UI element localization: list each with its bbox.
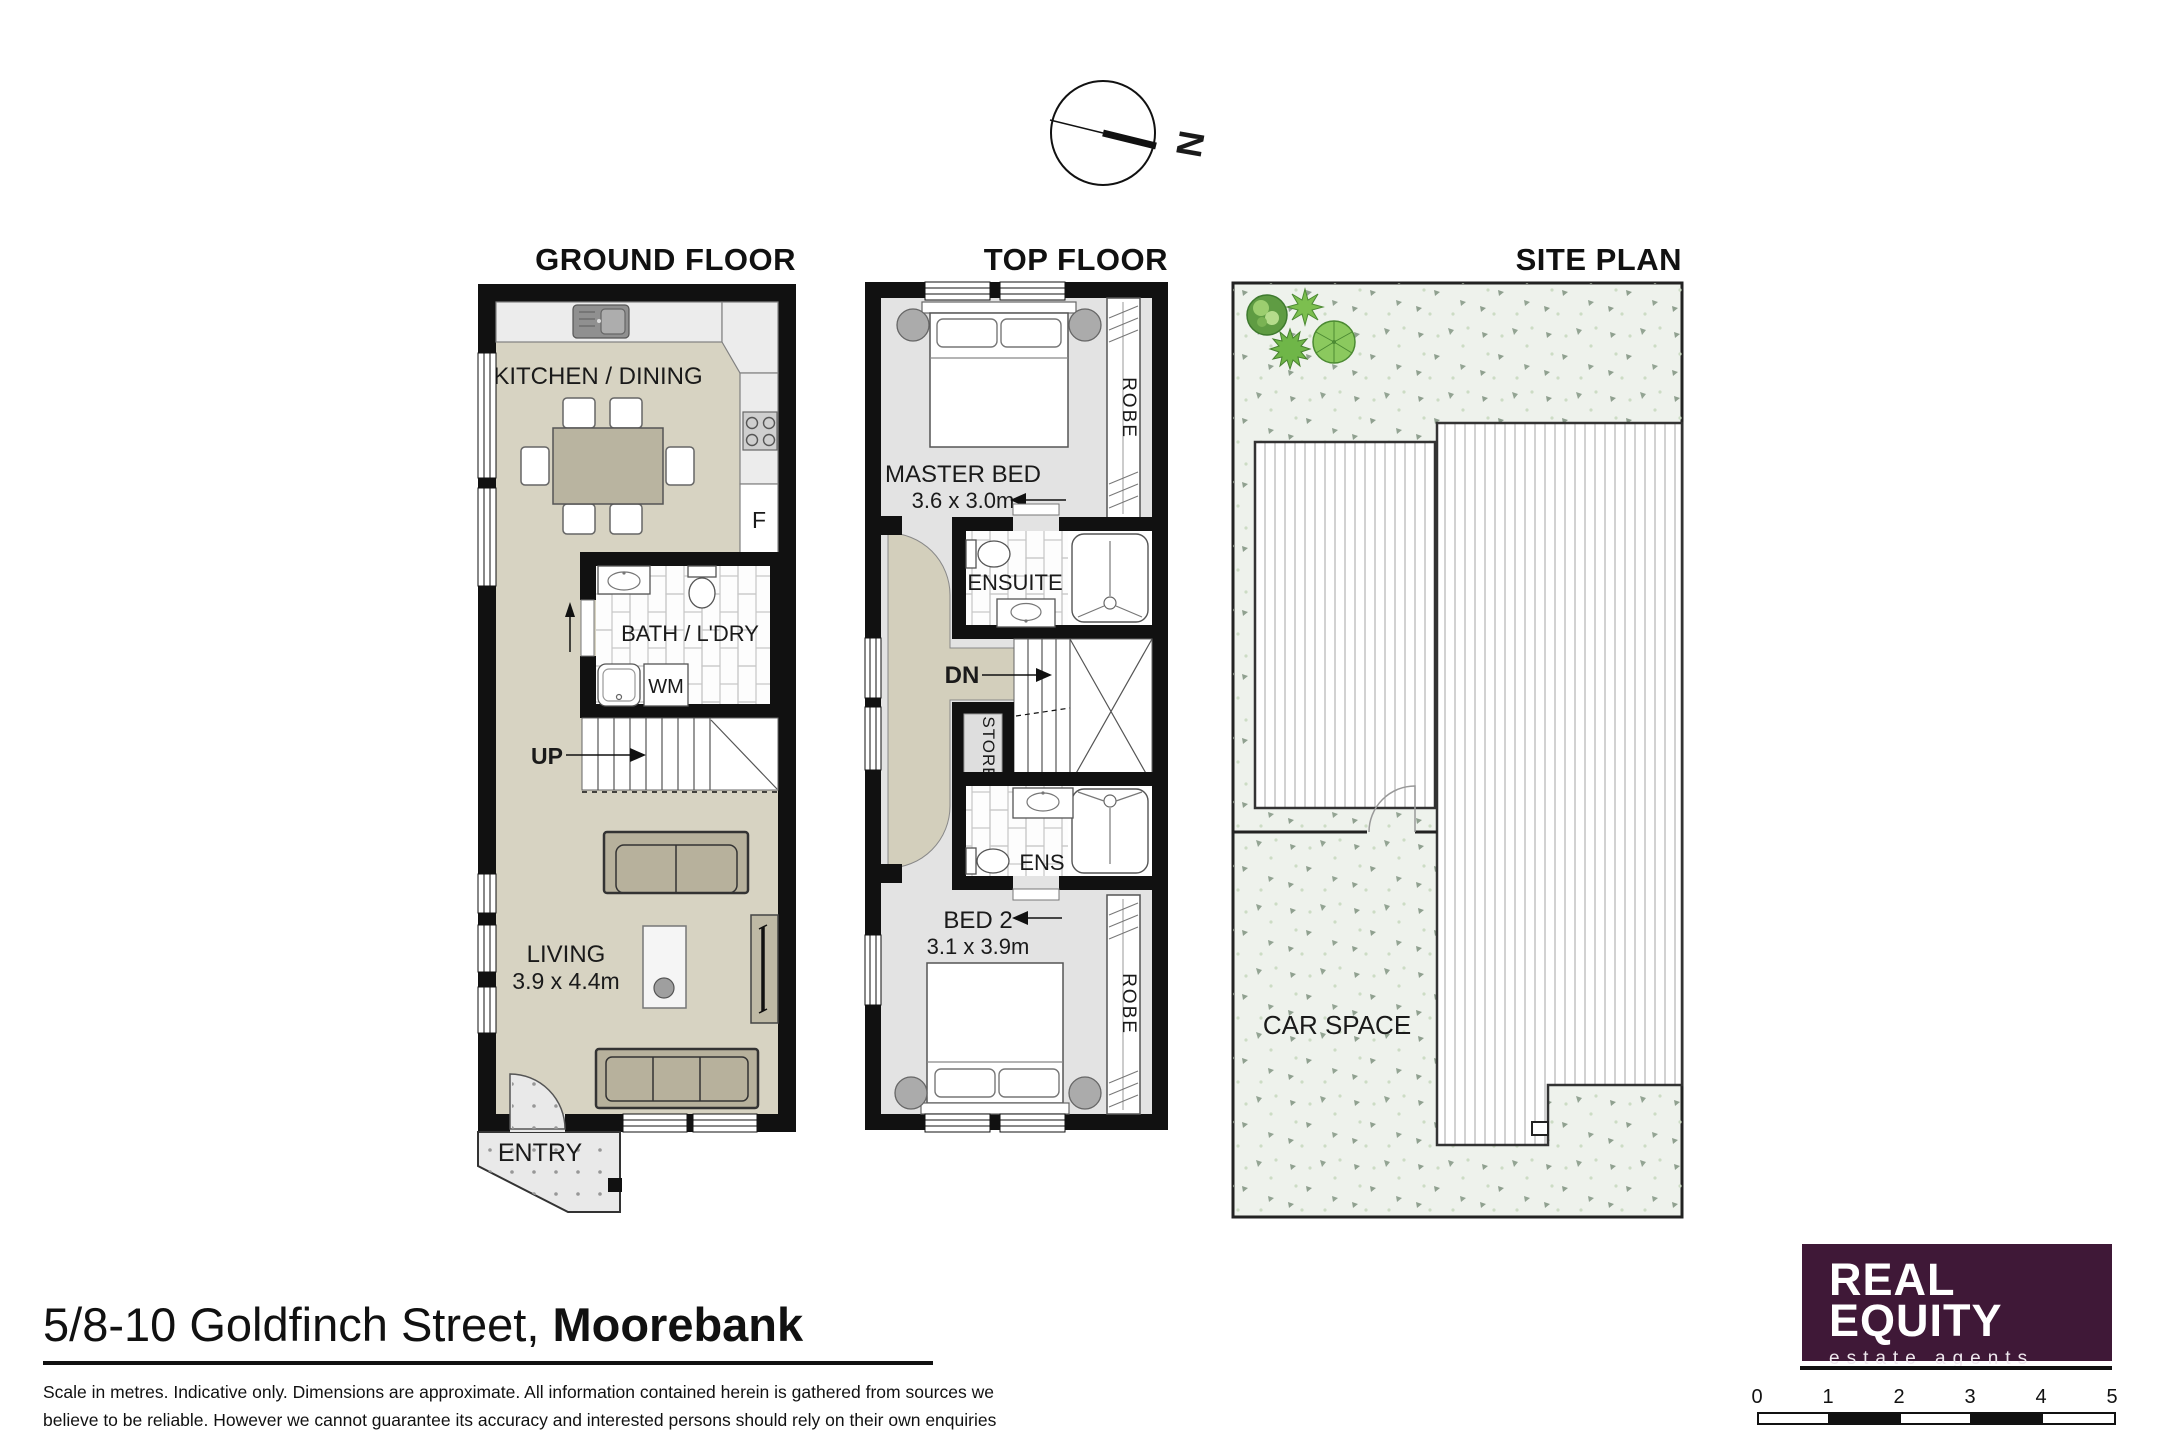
logo-rule <box>1800 1366 2112 1370</box>
store-label: STORE <box>979 716 998 779</box>
floorplan-page: N GROUND FLOOR TOP FLOOR SITE PLAN <box>0 0 2160 1440</box>
disclaimer-line2: believe to be reliable. However we canno… <box>43 1406 1143 1434</box>
ensuite2-room: ENS <box>952 772 1168 900</box>
robe-master: ROBE <box>1107 298 1140 518</box>
robe-bed2-label: ROBE <box>1118 973 1139 1035</box>
disclaimer-line1: Scale in metres. Indicative only. Dimens… <box>43 1378 1143 1406</box>
scale-tick: 2 <box>1884 1386 1914 1409</box>
wall-stub <box>876 864 902 883</box>
bath-laundry-label: BATH / L'DRY <box>621 621 759 646</box>
robe-bed2: ROBE <box>1107 895 1140 1114</box>
scale-tick: 1 <box>1813 1386 1843 1409</box>
scale-tick: 5 <box>2097 1386 2127 1409</box>
basin-icon <box>598 566 650 594</box>
ensuite-label: ENSUITE <box>967 570 1062 595</box>
scale-tick: 4 <box>2026 1386 2056 1409</box>
wall-stub <box>876 516 902 535</box>
basin-icon <box>997 599 1055 627</box>
bedside-table-icon <box>895 1077 927 1109</box>
stairs-up-label: UP <box>531 743 563 769</box>
toilet-icon <box>688 566 716 608</box>
toilet-icon <box>966 848 1009 874</box>
sink-icon <box>573 305 629 338</box>
stairs-down-label: DN <box>945 662 980 689</box>
star-tree-icon <box>1287 289 1323 325</box>
scale-tick: 0 <box>1742 1386 1772 1409</box>
coffee-table <box>643 926 686 1008</box>
address-street: 5/8-10 Goldfinch Street, <box>43 1298 552 1351</box>
robe-master-label: ROBE <box>1118 377 1139 439</box>
bath-door <box>581 600 594 656</box>
ensuite-door <box>1013 504 1059 515</box>
roof-right <box>1437 423 1682 1145</box>
scale-segment <box>1970 1412 2045 1425</box>
property-address: 5/8-10 Goldfinch Street, Moorebank <box>43 1297 803 1352</box>
toilet-icon <box>966 540 1010 568</box>
laundry-tub-icon <box>598 664 640 706</box>
ground-floor-plan: F KITCHEN / DINING <box>450 230 830 1230</box>
ensuite-room: ENSUITE <box>952 504 1168 639</box>
roof-left <box>1255 442 1435 808</box>
washing-machine-label: WM <box>648 676 684 698</box>
ensuite2-door <box>1013 889 1059 900</box>
bush-icon <box>1247 295 1287 335</box>
sofa-three-seat <box>596 1049 758 1108</box>
kitchen-dining-label: KITCHEN / DINING <box>493 363 702 390</box>
disclaimer: Scale in metres. Indicative only. Dimens… <box>43 1378 1143 1434</box>
master-bed-label: MASTER BED <box>885 461 1041 488</box>
logo-name-line1: REAL <box>1829 1259 2112 1300</box>
scale-segment <box>1828 1412 1903 1425</box>
scale-tick: 3 <box>1955 1386 1985 1409</box>
address-divider <box>43 1361 933 1365</box>
shower-icon <box>1068 786 1152 876</box>
shower-icon <box>1068 531 1152 625</box>
ensuite2-label: ENS <box>1019 850 1064 875</box>
compass-north-label: N <box>1168 128 1213 161</box>
round-tree-icon <box>1313 321 1355 363</box>
bath-laundry-room: BATH / L'DRY WM <box>565 552 796 718</box>
cooktop-icon <box>743 412 777 450</box>
address-suburb: Moorebank <box>552 1298 803 1351</box>
living-label: LIVING <box>527 941 606 968</box>
tv-unit <box>751 915 778 1023</box>
agency-logo: REAL EQUITY estate agents <box>1802 1244 2112 1361</box>
compass: N <box>1020 45 1250 235</box>
car-space-label: CAR SPACE <box>1263 1010 1411 1040</box>
bed2-label: BED 2 <box>943 907 1012 934</box>
bedside-table-icon <box>1069 1077 1101 1109</box>
scale-segment <box>2041 1412 2116 1425</box>
scale-segment <box>1899 1412 1974 1425</box>
scale-segment <box>1757 1412 1832 1425</box>
site-plan: CAR SPACE <box>1225 230 1695 1230</box>
bed2-dimensions: 3.1 x 3.9m <box>927 934 1030 959</box>
basin-icon <box>1013 788 1073 818</box>
sofa-two-seat <box>604 832 748 893</box>
roof-notch <box>1532 1122 1548 1135</box>
fridge-label: F <box>752 507 766 533</box>
living-dimensions: 3.9 x 4.4m <box>512 968 619 994</box>
logo-name-line2: EQUITY <box>1829 1300 2112 1341</box>
bedside-table-icon <box>1069 309 1101 341</box>
master-bed-dimensions: 3.6 x 3.0m <box>912 488 1015 513</box>
scale-bar: 0 1 2 3 4 5 <box>1757 1386 2117 1428</box>
entry-label: ENTRY <box>498 1139 583 1167</box>
top-floor-plan: ROBE MASTER BED 3.6 x 3.0m <box>855 230 1185 1150</box>
bedside-table-icon <box>897 309 929 341</box>
